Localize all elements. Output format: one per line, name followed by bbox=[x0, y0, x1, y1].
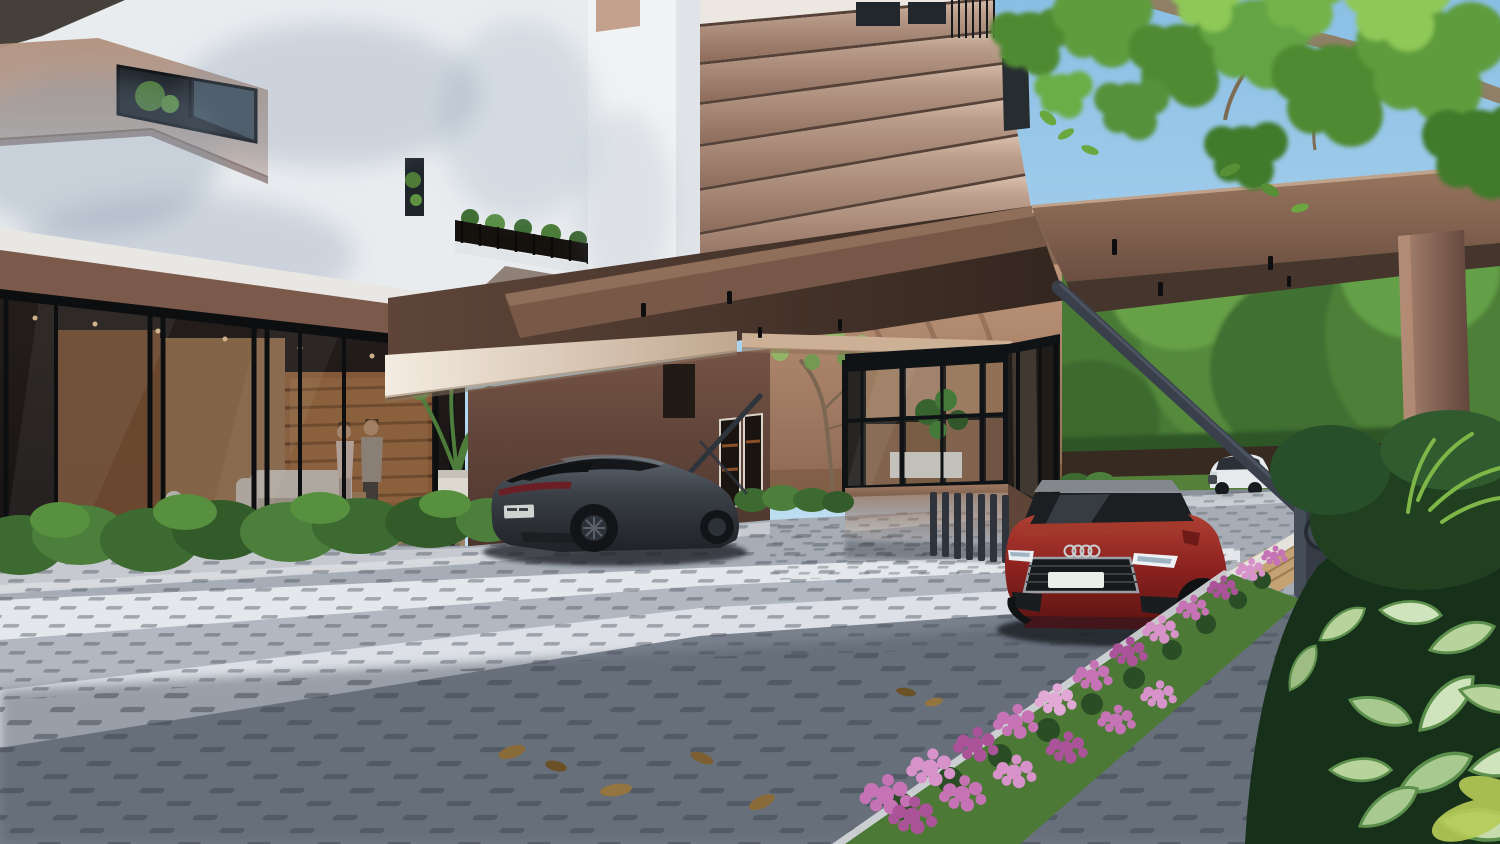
red-car-roof bbox=[1034, 480, 1180, 492]
architectural-render bbox=[0, 0, 1500, 844]
dark-car-plate bbox=[504, 504, 534, 518]
red-car-plate bbox=[1048, 572, 1104, 588]
window-plant-small bbox=[405, 158, 424, 216]
red-car-grille bbox=[1024, 558, 1138, 592]
